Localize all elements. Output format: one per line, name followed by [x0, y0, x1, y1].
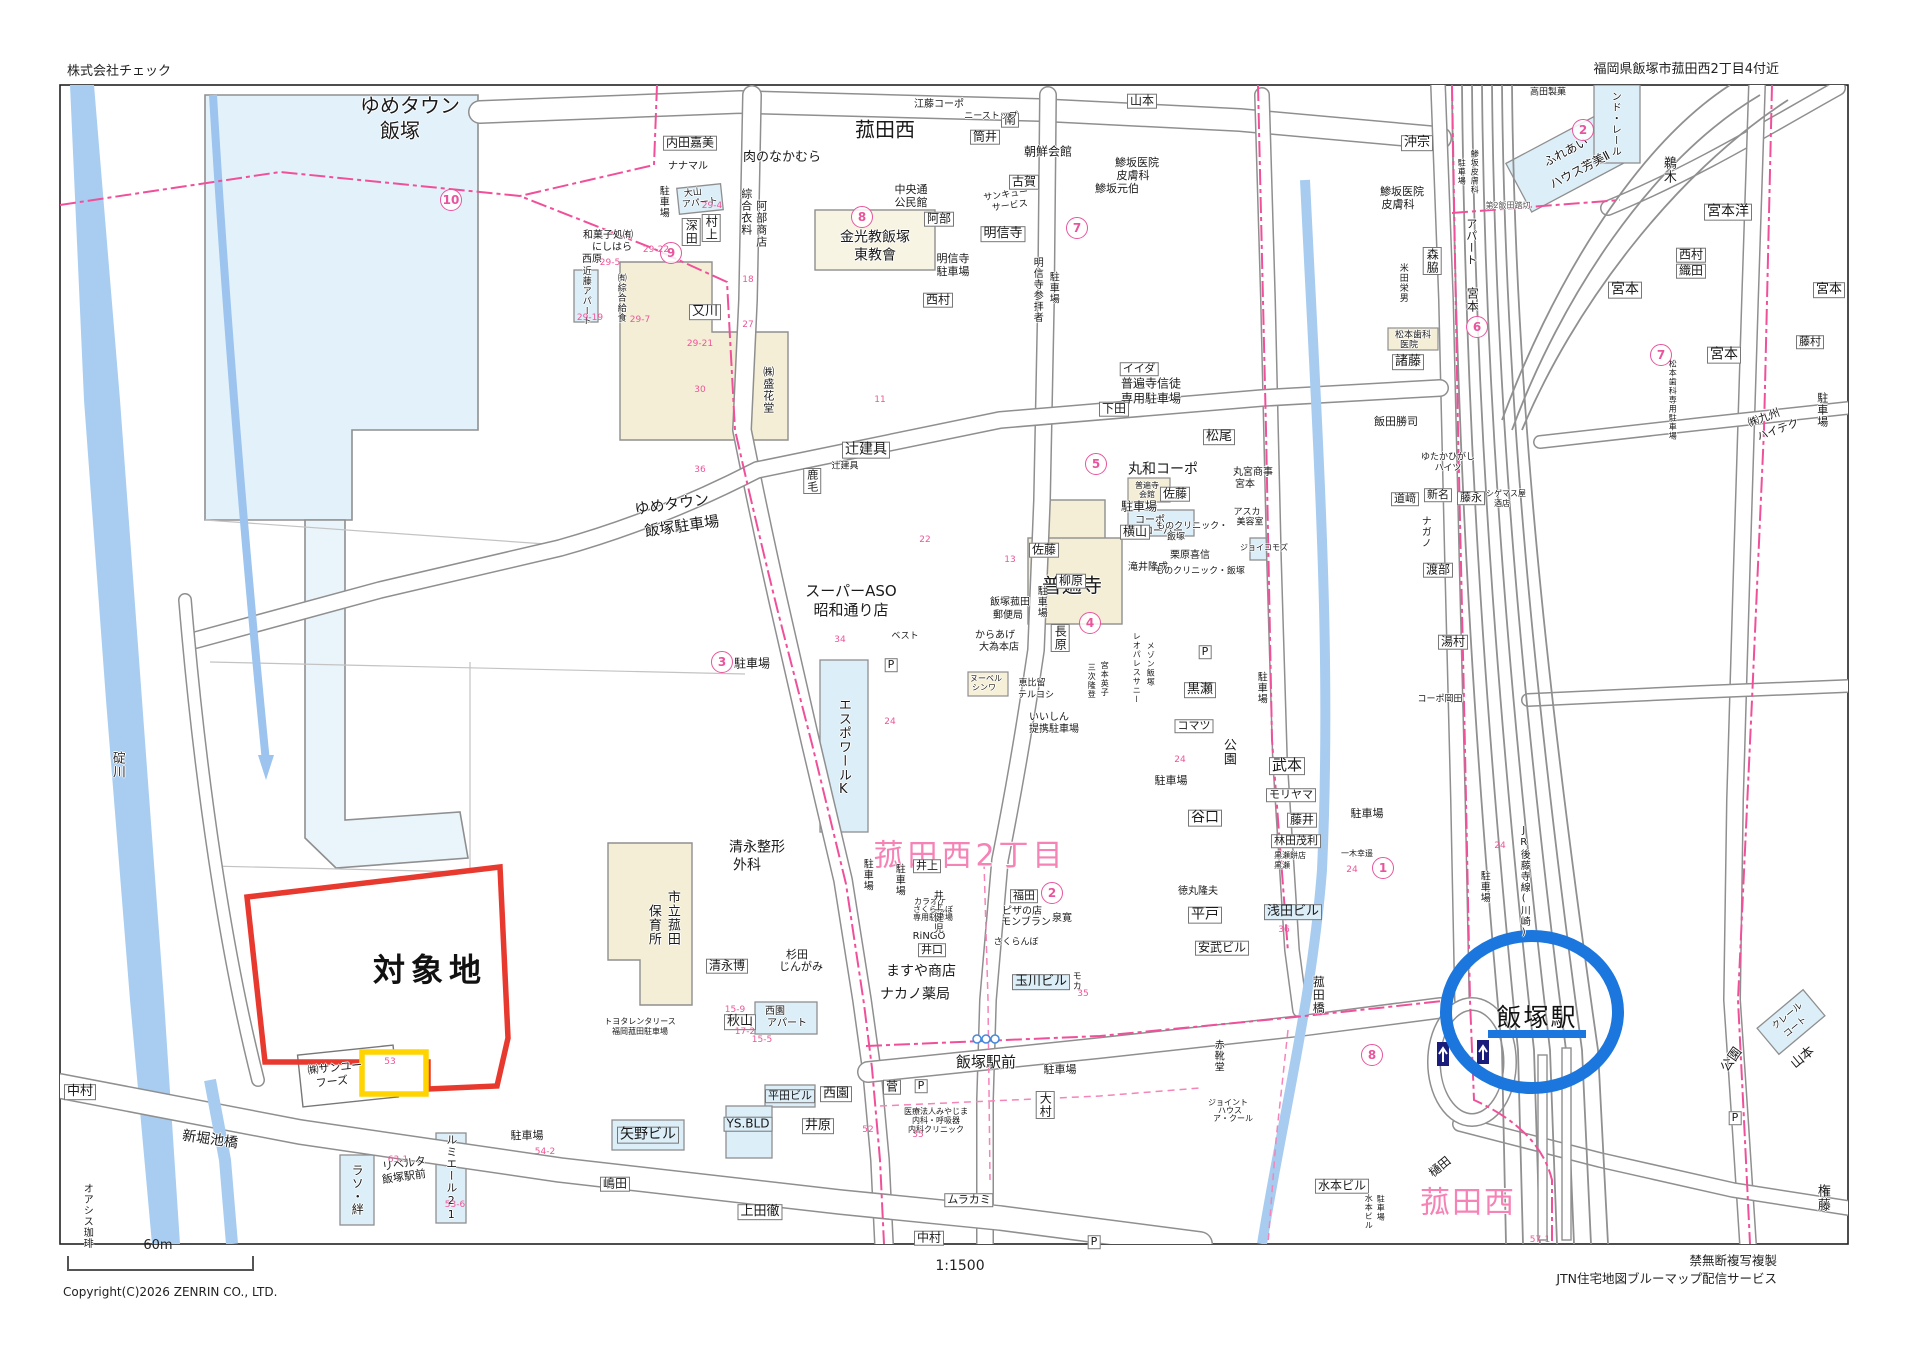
- map-canvas: [0, 0, 1909, 1350]
- reproduction-notice: 禁無断複写複製 JTN住宅地図ブルーマップ配信サービス: [1556, 1252, 1777, 1288]
- copyright-text: Copyright(C)2026 ZENRIN CO., LTD.: [63, 1285, 277, 1299]
- notice-line1: 禁無断複写複製: [1556, 1252, 1777, 1270]
- highlight-parcel: [362, 1052, 426, 1094]
- dental-building: [1388, 328, 1438, 350]
- zenrin-map-page: 株式会社チェック 福岡県飯塚市菰田西2丁目4付近: [0, 0, 1909, 1350]
- scale-bar: [67, 1256, 254, 1271]
- station-name-label: 飯塚駅: [1496, 998, 1577, 1034]
- target-site-label: 対象地: [373, 945, 487, 991]
- map-ratio: 1:1500: [900, 1258, 1020, 1274]
- notice-line2: JTN住宅地図ブルーマップ配信サービス: [1556, 1270, 1777, 1288]
- konkokyo-building: [815, 210, 935, 270]
- scale-bar-label: 60m: [143, 1238, 172, 1253]
- nouvelle-building: [968, 672, 1008, 696]
- signal-dots: [973, 1035, 999, 1043]
- fuhenji-hall-building: [1128, 478, 1170, 502]
